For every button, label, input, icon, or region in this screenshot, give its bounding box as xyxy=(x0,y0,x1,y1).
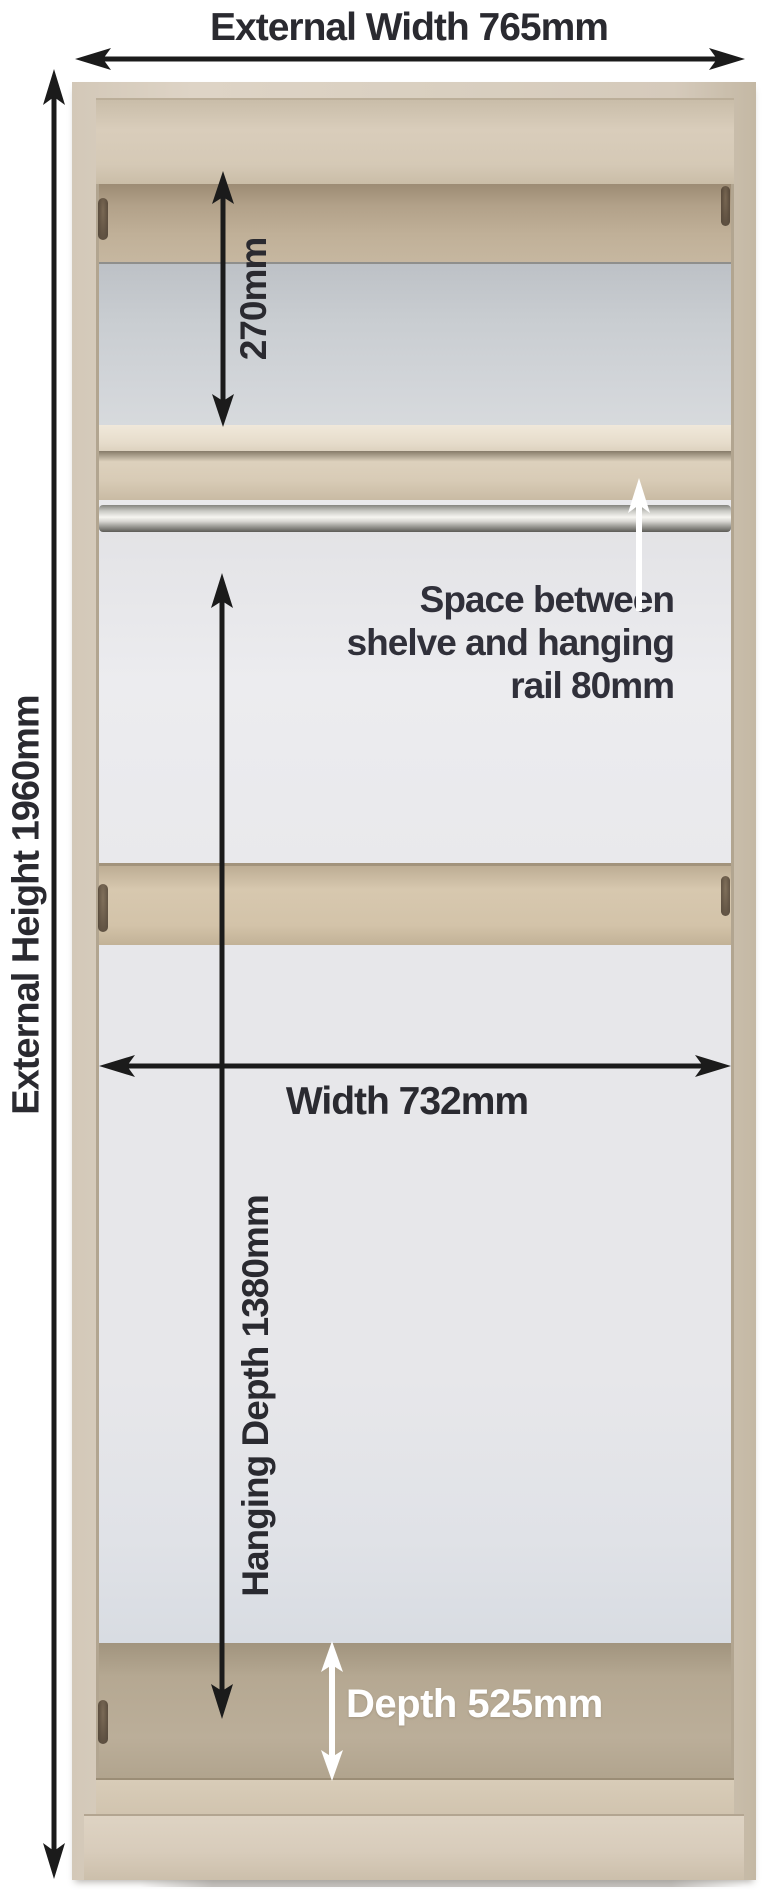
wardrobe-plinth xyxy=(84,1814,744,1880)
internal-width-arrow xyxy=(98,1053,732,1079)
hanging-depth-label: Hanging Depth 1380mm xyxy=(235,1195,277,1596)
wardrobe-header-panel xyxy=(96,98,734,190)
shelf-rail-space-line1: Space between xyxy=(274,578,674,621)
shelf-rail-space-arrow xyxy=(625,477,653,613)
hinge-left-middle xyxy=(98,884,108,932)
wardrobe-dimension-diagram: External Width 765mm External Height 196… xyxy=(0,0,768,1890)
external-height-arrow xyxy=(41,68,67,1880)
external-width-label: External Width 765mm xyxy=(174,6,644,50)
hinge-right-middle xyxy=(721,876,730,916)
wardrobe-bottom-front-edge xyxy=(96,1778,734,1814)
external-width-arrow xyxy=(74,46,746,72)
hinge-right-top xyxy=(721,186,730,226)
depth-label: Depth 525mm xyxy=(346,1682,603,1727)
depth-arrow xyxy=(318,1640,346,1782)
hinge-left-top xyxy=(98,198,108,240)
top-shelf-space-label: 270mm xyxy=(233,238,275,361)
back-panel-top-gray xyxy=(99,262,731,425)
shelf-rail-space-line2: shelve and hanging xyxy=(274,621,674,664)
ground-shadow xyxy=(140,1880,744,1887)
hinge-left-bottom xyxy=(98,1700,108,1744)
wardrobe-interior xyxy=(96,184,734,1643)
shelf-rail-space-line3: rail 80mm xyxy=(274,664,674,707)
back-panel-lower xyxy=(99,945,731,1643)
internal-width-label: Width 732mm xyxy=(207,1080,607,1124)
top-shelf-space-arrow xyxy=(209,170,237,428)
shelf-top-surface xyxy=(99,425,731,451)
shelf-rail-space-label: Space between shelve and hanging rail 80… xyxy=(274,578,674,707)
back-panel-middle-wood-strip xyxy=(99,863,731,945)
back-panel-top-wood xyxy=(99,184,731,262)
hanging-depth-arrow xyxy=(208,572,236,1720)
